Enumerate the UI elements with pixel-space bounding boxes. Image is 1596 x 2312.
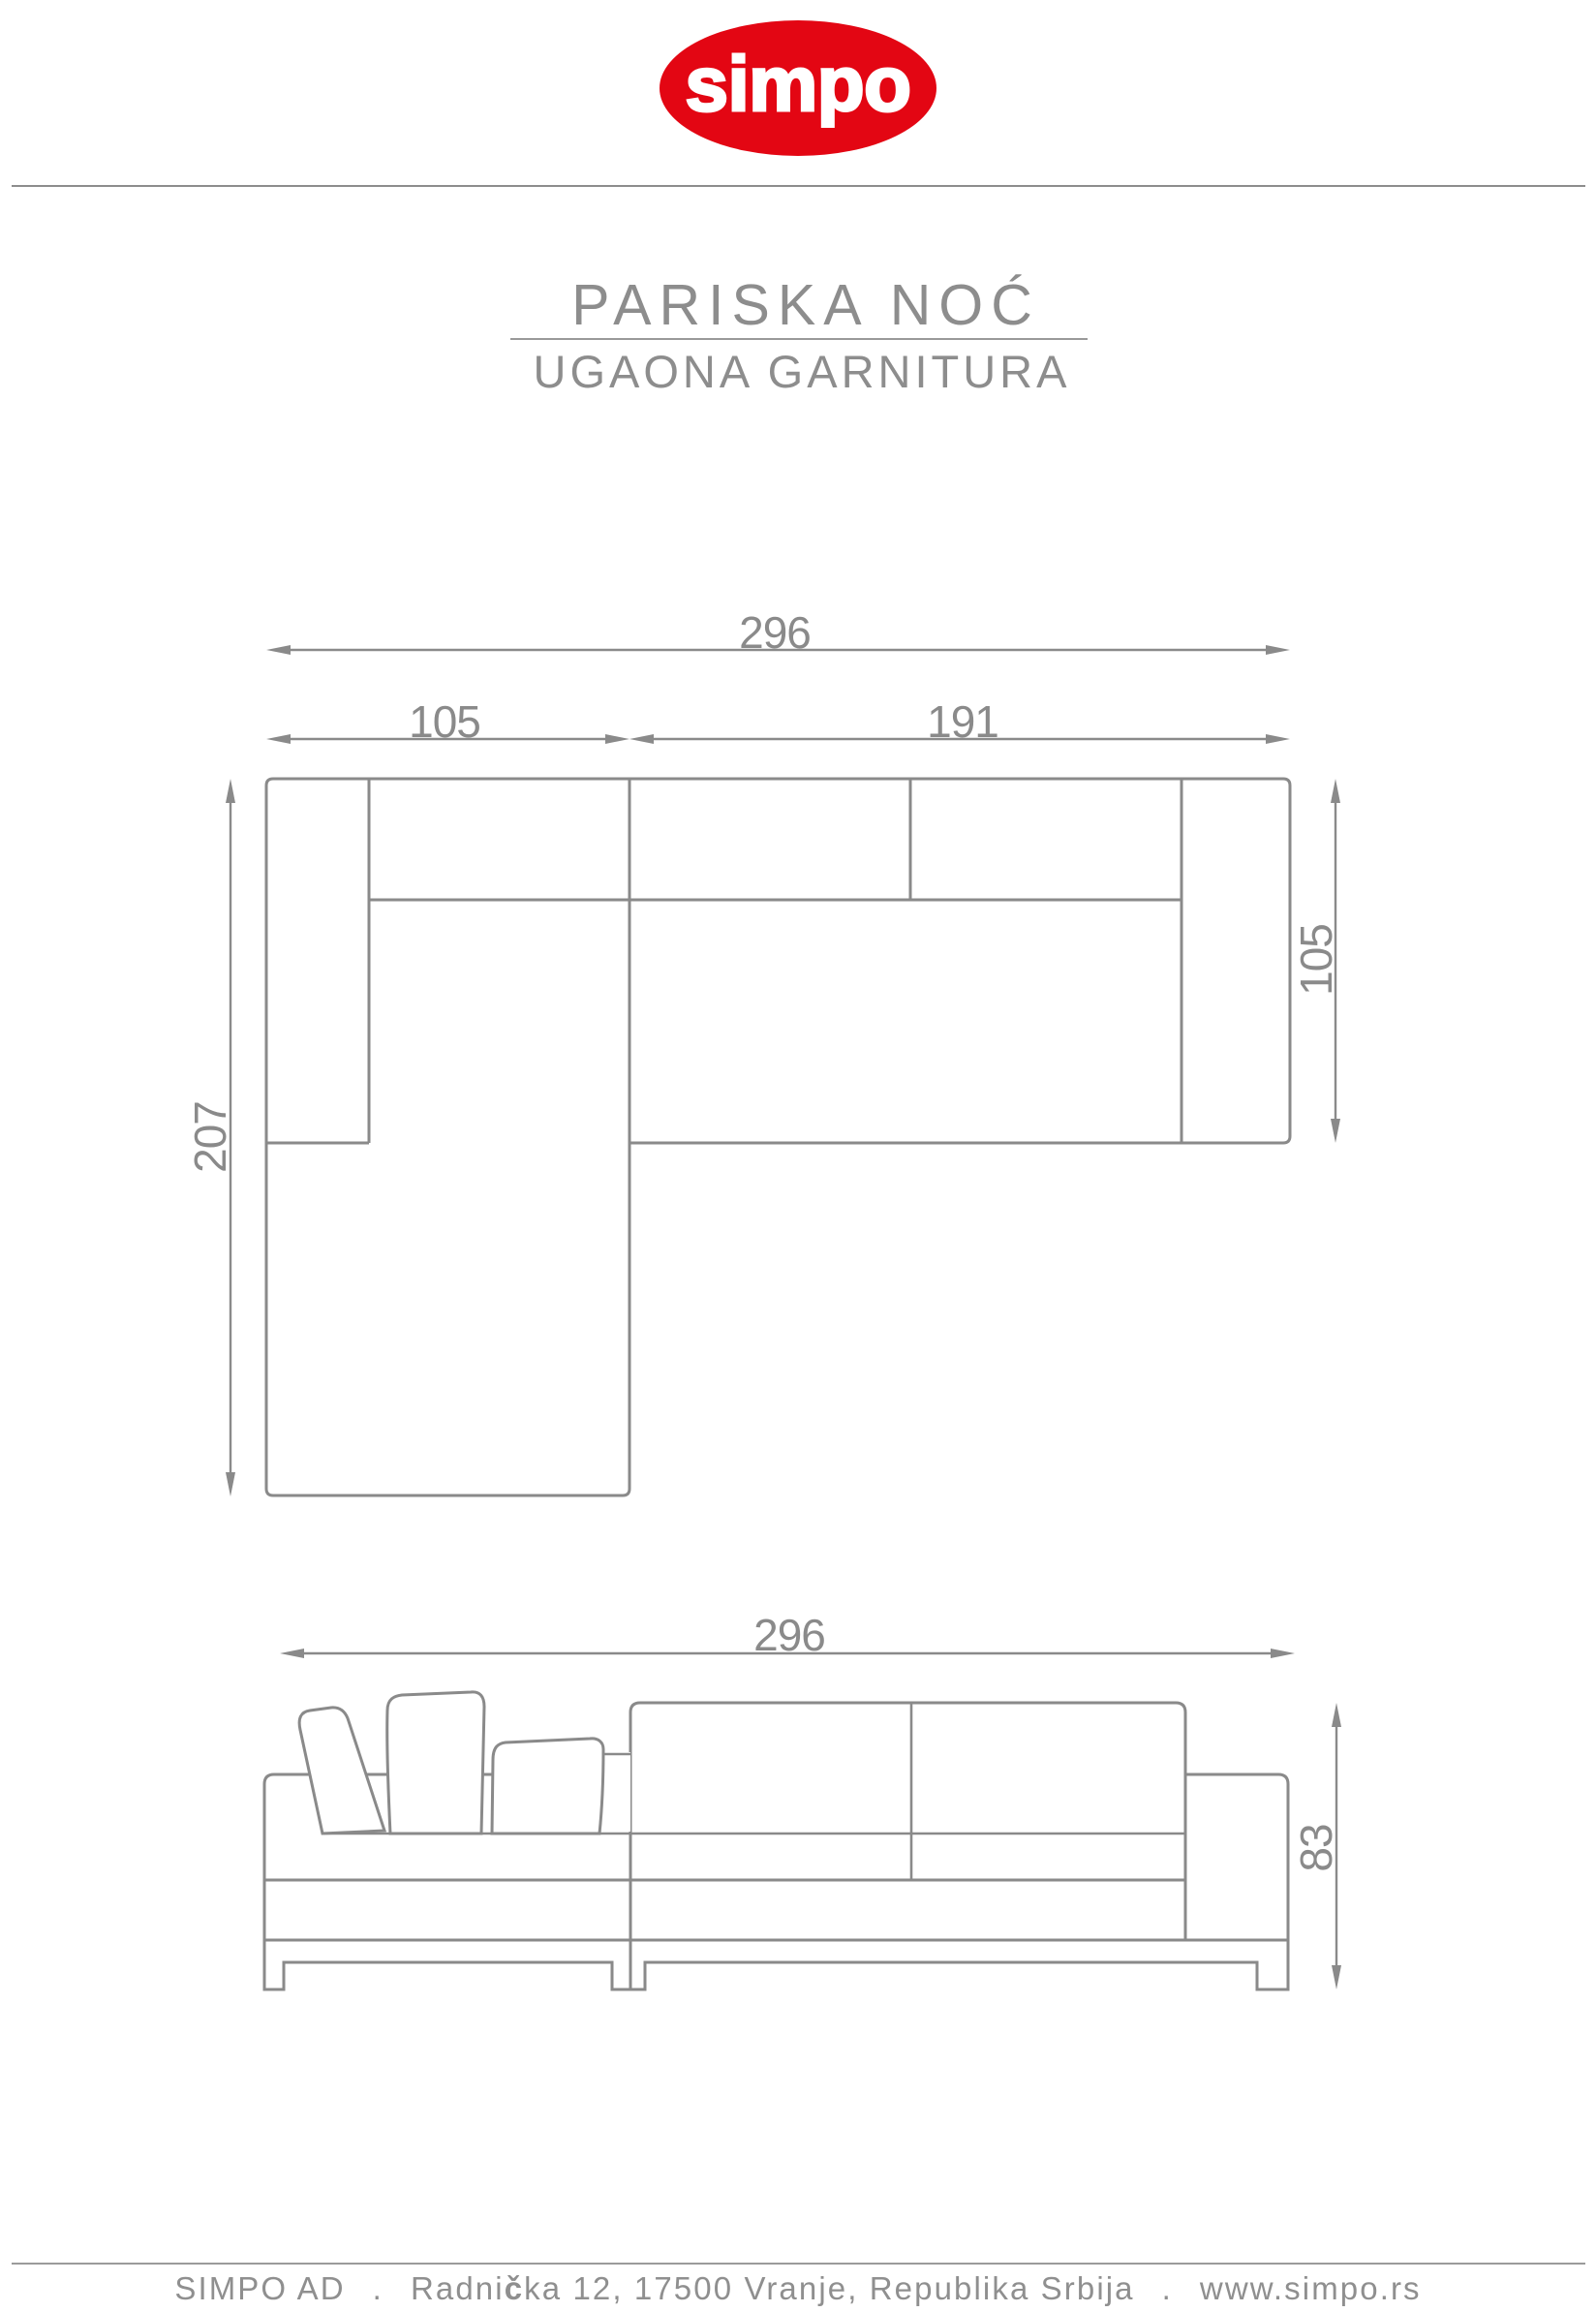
svg-text:105: 105	[1291, 924, 1341, 996]
svg-text:296: 296	[739, 607, 811, 658]
svg-text:296: 296	[753, 1610, 825, 1660]
svg-text:191: 191	[927, 696, 998, 747]
svg-text:207: 207	[185, 1101, 235, 1173]
svg-text:105: 105	[409, 696, 480, 747]
svg-text:83: 83	[1291, 1824, 1341, 1871]
